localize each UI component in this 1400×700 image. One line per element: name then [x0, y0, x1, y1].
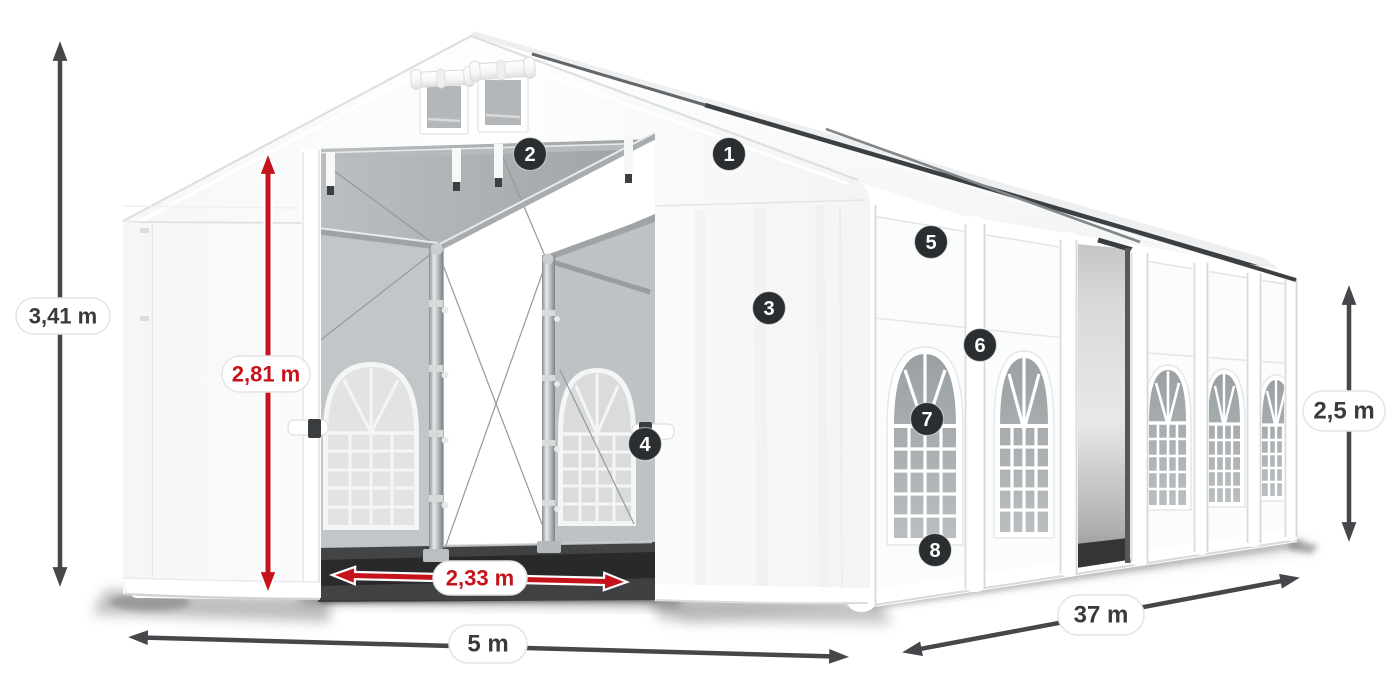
svg-text:8: 8	[929, 540, 940, 562]
svg-text:2: 2	[524, 144, 535, 166]
svg-text:5 m: 5 m	[467, 631, 508, 658]
svg-text:2,81 m: 2,81 m	[232, 362, 301, 387]
svg-text:6: 6	[974, 335, 985, 357]
svg-text:1: 1	[723, 144, 734, 166]
svg-text:5: 5	[925, 232, 936, 254]
svg-text:3: 3	[763, 298, 774, 320]
svg-text:2,5 m: 2,5 m	[1313, 398, 1374, 425]
svg-text:3,41 m: 3,41 m	[29, 304, 98, 329]
svg-text:37 m: 37 m	[1074, 602, 1129, 629]
svg-text:7: 7	[921, 409, 932, 431]
svg-text:4: 4	[639, 434, 651, 456]
svg-text:2,33 m: 2,33 m	[446, 566, 515, 591]
